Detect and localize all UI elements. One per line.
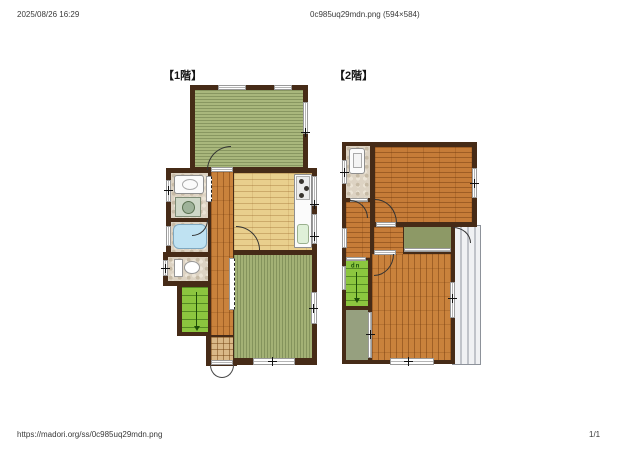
window-tick	[470, 179, 479, 188]
window-tick	[366, 330, 375, 339]
closet-north-2f	[404, 227, 451, 250]
floorplan-2f: up	[0, 0, 640, 452]
sink-basin-2f	[353, 153, 362, 168]
stairs-arrow-line-2f	[356, 272, 357, 298]
window	[342, 228, 347, 248]
window-tick	[404, 357, 413, 366]
door-gap	[346, 257, 366, 261]
window-tick	[340, 168, 349, 177]
footer-url: https://madori.org/ss/0c985uq29mdn.png	[17, 430, 162, 439]
closet-south-2f	[346, 310, 368, 360]
sink-unit-2f	[349, 148, 365, 174]
stairs-arrow-head-2f	[354, 298, 360, 303]
window-tick	[448, 294, 457, 303]
window	[342, 266, 346, 290]
closet-door	[404, 248, 451, 252]
footer-page-number: 1/1	[589, 430, 600, 439]
stairs-up-label: up	[350, 262, 359, 268]
